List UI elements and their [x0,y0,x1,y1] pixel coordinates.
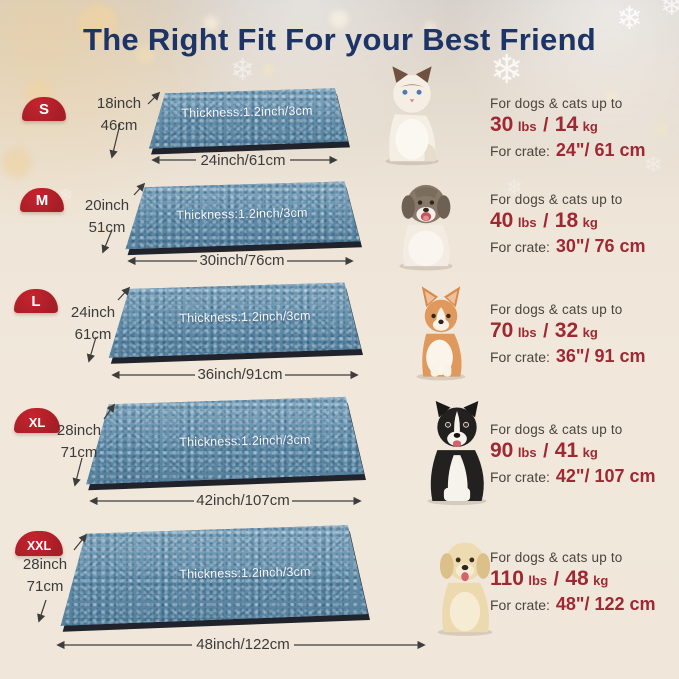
fit-info-l: For dogs & cats up to 70 lbs / 32 kg For… [490,302,646,367]
width-label: 36inch/91cm [160,366,320,383]
crate-line: For crate:30"/ 76 cm [490,236,646,257]
fit-info-m: For dogs & cats up to 40 lbs / 18 kg For… [490,192,646,257]
ragdoll-cat-image [366,64,458,166]
corgi-image [404,281,478,385]
crate-line: For crate:42"/ 107 cm [490,466,656,487]
weight-line: 110 lbs / 48 kg [490,567,656,591]
weight-line: 30 lbs / 14 kg [490,113,646,137]
crate-line: For crate:48"/ 122 cm [490,594,656,615]
size-badge-m: M [20,188,64,212]
width-label: 30inch/76cm [162,252,322,269]
crate-line: For crate:36"/ 91 cm [490,346,646,367]
depth-label: 20inch 51cm [80,195,134,239]
crate-line: For crate:24"/ 61 cm [490,140,646,161]
bokeh-glow [2,148,32,178]
weight-line: 90 lbs / 41 kg [490,439,656,463]
fit-line: For dogs & cats up to [490,192,646,207]
depth-label: 24inch 61cm [66,302,120,346]
bokeh-glow [654,122,668,136]
fit-line: For dogs & cats up to [490,422,656,437]
fit-info-xxl: For dogs & cats up to 110 lbs / 48 kg Fo… [490,550,656,615]
border-collie-image [416,396,498,506]
size-guide-infographic: ❄ ❄ ❄ ❄ ❄ ❄ ❄ The Right Fit For your Bes… [0,0,679,679]
fit-info-s: For dogs & cats up to 30 lbs / 14 kg For… [490,96,646,161]
fit-line: For dogs & cats up to [490,96,646,111]
depth-label: 18inch 46cm [92,93,146,137]
fit-line: For dogs & cats up to [490,550,656,565]
snowflake-icon: ❄ [230,56,255,86]
depth-label: 28inch 71cm [18,554,72,598]
snowflake-icon: ❄ [644,154,662,176]
width-label: 48inch/122cm [163,636,323,653]
snowflake-icon: ❄ [660,0,679,20]
page-title: The Right Fit For your Best Friend [0,22,679,58]
puppy-image [384,176,468,272]
weight-line: 40 lbs / 18 kg [490,209,646,233]
fit-line: For dogs & cats up to [490,302,646,317]
size-badge-l: L [14,289,58,313]
weight-line: 70 lbs / 32 kg [490,319,646,343]
width-label: 24inch/61cm [163,152,323,169]
bokeh-glow [262,64,274,76]
depth-label: 28inch 71cm [52,420,106,464]
fit-info-xl: For dogs & cats up to 90 lbs / 41 kg For… [490,422,656,487]
width-label: 42inch/107cm [163,492,323,509]
size-badge-s: S [22,97,66,121]
